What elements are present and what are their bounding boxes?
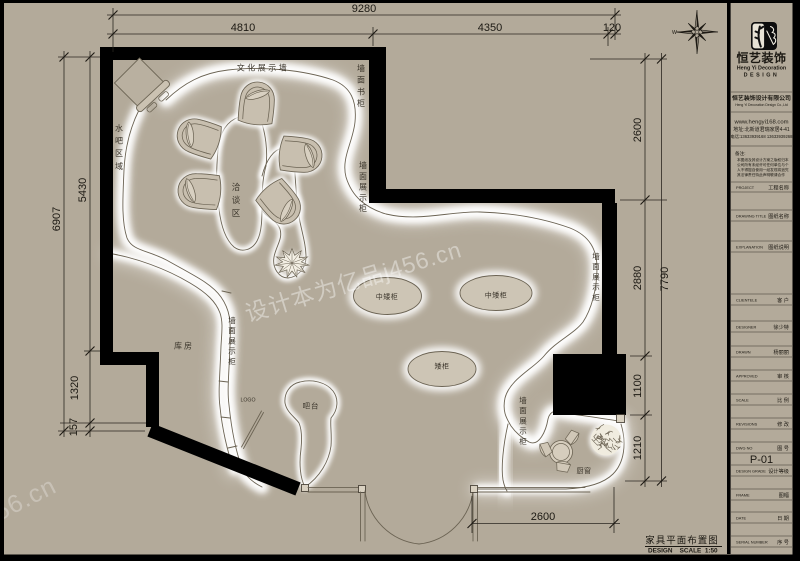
svg-text:4350: 4350 <box>478 22 502 34</box>
svg-text:DESIGN GRADE: DESIGN GRADE <box>736 469 766 474</box>
svg-text:图纸说明: 图纸说明 <box>768 243 789 251</box>
svg-text:157: 157 <box>68 418 80 436</box>
svg-text:APPROVED: APPROVED <box>736 374 758 379</box>
svg-text:公司所有未经许可任何单位与个: 公司所有未经许可任何单位与个 <box>737 162 789 167</box>
svg-text:9280: 9280 <box>352 3 376 15</box>
svg-text:墙面展示柜: 墙面展示柜 <box>592 251 600 302</box>
svg-text:6907: 6907 <box>51 207 63 231</box>
svg-text:1100: 1100 <box>632 374 644 398</box>
svg-text:备注:: 备注: <box>735 150 745 157</box>
svg-text:1320: 1320 <box>69 376 81 400</box>
svg-text:LOGO: LOGO <box>241 398 256 404</box>
svg-text:DRAWING TITLE: DRAWING TITLE <box>736 214 767 219</box>
svg-text:SERIAL NUMBER: SERIAL NUMBER <box>736 540 768 545</box>
svg-text:Heng Yi Decoration Design Co.,: Heng Yi Decoration Design Co.,Ltd <box>735 103 788 107</box>
svg-text:2880: 2880 <box>632 266 644 290</box>
svg-text:SCALE: SCALE <box>736 398 749 403</box>
svg-text:序 号: 序 号 <box>777 538 789 546</box>
svg-text:W: W <box>672 30 677 36</box>
svg-text:日 期: 日 期 <box>777 515 789 522</box>
svg-text:厨窗: 厨窗 <box>577 466 592 475</box>
svg-text:图纸名称: 图纸名称 <box>768 212 789 220</box>
svg-text:电话:13633939168 13633939268: 电话:13633939168 13633939268 <box>731 133 794 140</box>
svg-text:PROJECT: PROJECT <box>736 185 755 190</box>
svg-text:DWG NO: DWG NO <box>736 446 752 451</box>
svg-text:CLIENTELE: CLIENTELE <box>736 298 758 303</box>
svg-text:库房: 库房 <box>174 341 194 351</box>
svg-text:图 号: 图 号 <box>777 445 789 452</box>
svg-text:审 核: 审 核 <box>777 372 789 380</box>
svg-text:2600: 2600 <box>632 118 644 142</box>
svg-text:DATE: DATE <box>736 516 746 521</box>
svg-text:墙面展示柜: 墙面展示柜 <box>359 160 367 213</box>
svg-text:4810: 4810 <box>231 22 255 34</box>
svg-text:1210: 1210 <box>632 436 644 460</box>
svg-text:DRAWN: DRAWN <box>736 350 751 355</box>
svg-text:地址:北新道君瑞家居4-41: 地址:北新道君瑞家居4-41 <box>733 126 790 133</box>
svg-text:5430: 5430 <box>77 178 89 202</box>
svg-text:修 改: 修 改 <box>777 420 790 428</box>
svg-text:恒艺装饰: 恒艺装饰 <box>736 50 786 65</box>
svg-text:恒艺装饰设计有限公司: 恒艺装饰设计有限公司 <box>731 94 791 102</box>
svg-text:120: 120 <box>603 22 621 34</box>
svg-text:DESIGN SCALE 1:50: DESIGN SCALE 1:50 <box>648 548 718 555</box>
svg-text:www.hengyi168.com: www.hengyi168.com <box>733 120 788 126</box>
svg-text:中矮柜: 中矮柜 <box>485 291 508 300</box>
svg-text:吧台: 吧台 <box>303 401 320 411</box>
svg-text:其法律责任特此声明敬请合作: 其法律责任特此声明敬请合作 <box>737 172 785 177</box>
svg-text:P-01: P-01 <box>750 454 773 466</box>
svg-text:比 例: 比 例 <box>777 396 789 404</box>
svg-text:人不得擅自使用一经发现将追究: 人不得擅自使用一经发现将追究 <box>737 167 789 172</box>
svg-text:FRAME: FRAME <box>736 493 750 498</box>
svg-text:Heng Yi Decoration: Heng Yi Decoration <box>737 66 786 72</box>
svg-text:设计等级: 设计等级 <box>768 467 789 475</box>
svg-text:EXPLANATION: EXPLANATION <box>736 245 763 250</box>
svg-text:洽谈区: 洽谈区 <box>232 182 241 218</box>
svg-text:DESIGNER: DESIGNER <box>736 325 757 330</box>
svg-text:2600: 2600 <box>531 511 555 523</box>
svg-text:DESIGN: DESIGN <box>744 73 780 79</box>
svg-text:客 户: 客 户 <box>777 296 789 304</box>
svg-text:文化展示墙: 文化展示墙 <box>237 63 290 73</box>
svg-text:本图纸及其设计方案之版权归本: 本图纸及其设计方案之版权归本 <box>737 157 789 162</box>
svg-text:工程名称: 工程名称 <box>768 184 789 192</box>
svg-text:杨丽丽: 杨丽丽 <box>773 348 789 356</box>
svg-text:中矮柜: 中矮柜 <box>376 292 399 301</box>
svg-text:REVISIONS: REVISIONS <box>736 422 758 427</box>
svg-text:7790: 7790 <box>659 267 671 291</box>
svg-text:家具平面布置图: 家具平面布置图 <box>645 535 719 547</box>
svg-text:图幅: 图幅 <box>779 491 789 499</box>
svg-text:墙面展示柜: 墙面展示柜 <box>519 395 527 446</box>
svg-text:徐少特: 徐少特 <box>773 323 789 331</box>
svg-text:墙面展示柜: 墙面展示柜 <box>228 315 236 366</box>
svg-text:矮柜: 矮柜 <box>435 362 450 371</box>
